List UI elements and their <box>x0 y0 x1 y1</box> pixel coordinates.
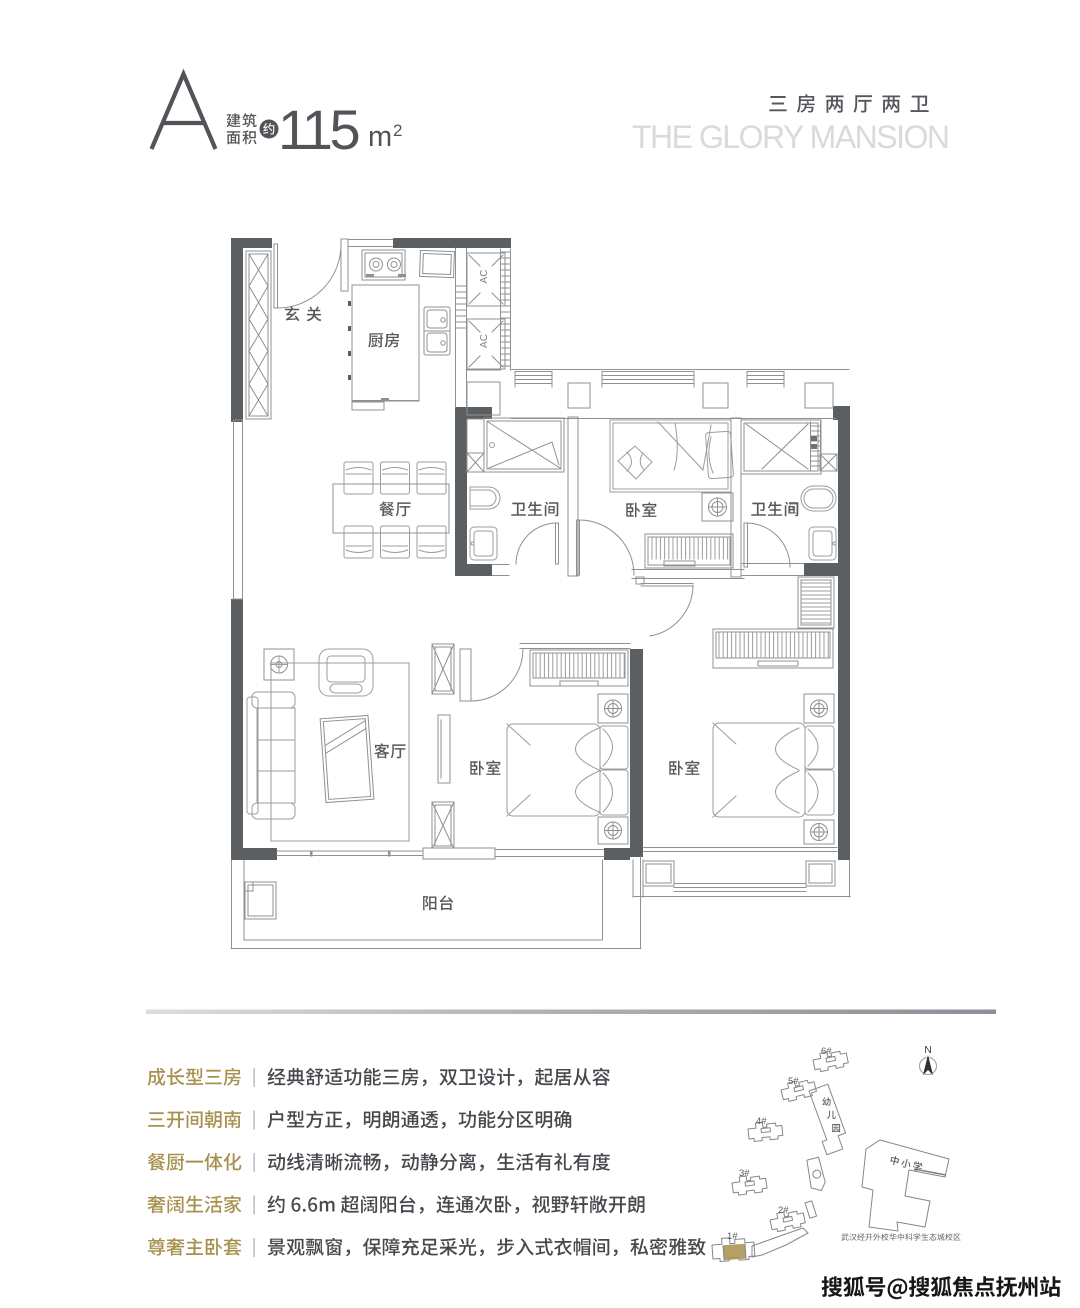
svg-text:THE GLORY MANSION: THE GLORY MANSION <box>632 119 949 155</box>
svg-text:AC: AC <box>479 334 490 348</box>
svg-text:N: N <box>924 1044 932 1056</box>
svg-text:1#: 1# <box>727 1231 738 1242</box>
svg-text:5#: 5# <box>788 1076 799 1087</box>
svg-text:2#: 2# <box>778 1205 789 1216</box>
svg-text:3#: 3# <box>739 1168 750 1179</box>
svg-text:m: m <box>368 121 392 153</box>
svg-text:4#: 4# <box>756 1116 767 1127</box>
svg-text:AC: AC <box>479 270 490 284</box>
svg-text:115: 115 <box>278 98 359 161</box>
svg-text:2: 2 <box>393 121 402 140</box>
svg-text:6#: 6# <box>821 1046 832 1057</box>
